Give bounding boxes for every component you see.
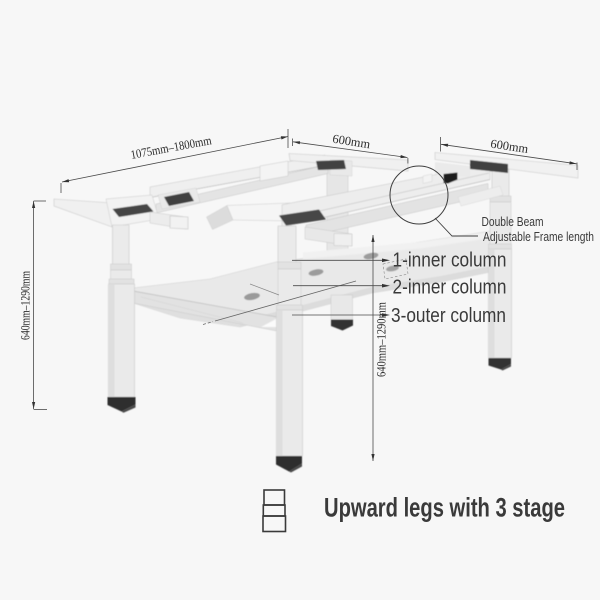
svg-text:640mm–1290mm: 640mm–1290mm: [19, 271, 33, 340]
svg-text:2-inner column: 2-inner column: [393, 276, 507, 299]
svg-text:1-inner column: 1-inner column: [393, 249, 507, 272]
svg-text:3-outer column: 3-outer column: [391, 304, 506, 327]
svg-text:640mm–1290mm: 640mm–1290mm: [375, 302, 389, 377]
svg-text:Adjustable Frame length: Adjustable Frame length: [483, 230, 594, 244]
svg-text:Upward legs with 3 stage: Upward legs with 3 stage: [324, 493, 565, 523]
svg-text:Double Beam: Double Beam: [482, 215, 544, 229]
